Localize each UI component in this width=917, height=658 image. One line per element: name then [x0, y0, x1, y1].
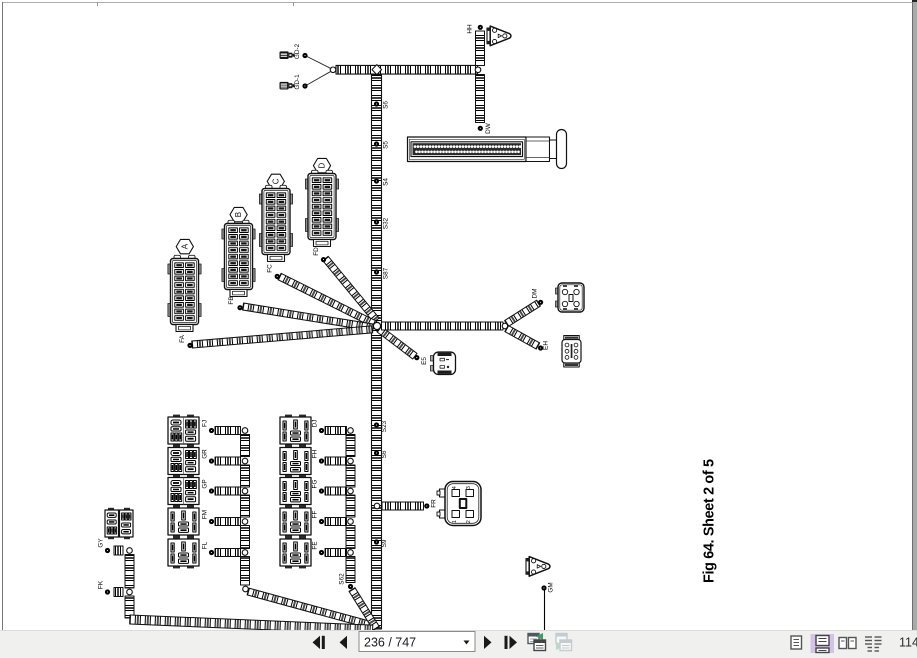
svg-text:FK: FK — [98, 580, 105, 589]
svg-text:FG: FG — [312, 480, 319, 489]
svg-text:S6: S6 — [381, 450, 388, 458]
svg-text:DJ: DJ — [312, 420, 319, 428]
svg-text:HH: HH — [467, 24, 474, 34]
svg-text:GR: GR — [202, 449, 209, 459]
svg-text:3: 3 — [466, 486, 472, 489]
svg-text:E5: E5 — [421, 357, 428, 365]
svg-text:FE: FE — [312, 541, 319, 549]
svg-text:FD: FD — [313, 247, 320, 256]
svg-text:B: B — [234, 212, 243, 217]
svg-text:S23: S23 — [381, 420, 388, 432]
svg-text:GY: GY — [98, 538, 105, 548]
svg-text:236 / 747: 236 / 747 — [364, 636, 416, 650]
svg-text:FL: FL — [202, 541, 209, 549]
svg-text:FA: FA — [179, 334, 186, 343]
svg-text:114%: 114% — [899, 636, 917, 650]
svg-text:S5: S5 — [383, 141, 390, 149]
svg-text:A: A — [180, 243, 189, 249]
svg-text:S87: S87 — [383, 267, 390, 279]
svg-text:S4: S4 — [383, 178, 390, 186]
svg-text:FC: FC — [267, 264, 274, 273]
svg-text:S9: S9 — [381, 539, 388, 547]
svg-text:GD-2: GD-2 — [294, 43, 301, 59]
svg-text:FR: FR — [431, 499, 438, 508]
svg-text:S6: S6 — [383, 101, 390, 109]
svg-text:1: 1 — [452, 520, 458, 523]
svg-text:C: C — [271, 178, 280, 184]
svg-text:D: D — [318, 162, 327, 168]
svg-text:FH: FH — [312, 449, 319, 458]
svg-text:FF: FF — [312, 511, 319, 519]
svg-text:DM: DM — [532, 289, 539, 299]
svg-text:FJ: FJ — [202, 420, 209, 427]
svg-text:DW: DW — [485, 122, 492, 134]
svg-text:FM: FM — [202, 510, 209, 519]
svg-text:S62: S62 — [339, 573, 346, 585]
svg-text:4: 4 — [452, 486, 458, 489]
svg-text:Fig 64. Sheet 2 of 5: Fig 64. Sheet 2 of 5 — [702, 459, 718, 583]
svg-text:S32: S32 — [383, 217, 390, 229]
svg-text:FB: FB — [228, 296, 235, 304]
svg-text:EH: EH — [543, 341, 550, 350]
svg-text:GM: GM — [548, 582, 555, 592]
svg-text:GD-1: GD-1 — [294, 74, 301, 90]
svg-text:2: 2 — [466, 520, 472, 523]
svg-text:GP: GP — [202, 479, 209, 488]
